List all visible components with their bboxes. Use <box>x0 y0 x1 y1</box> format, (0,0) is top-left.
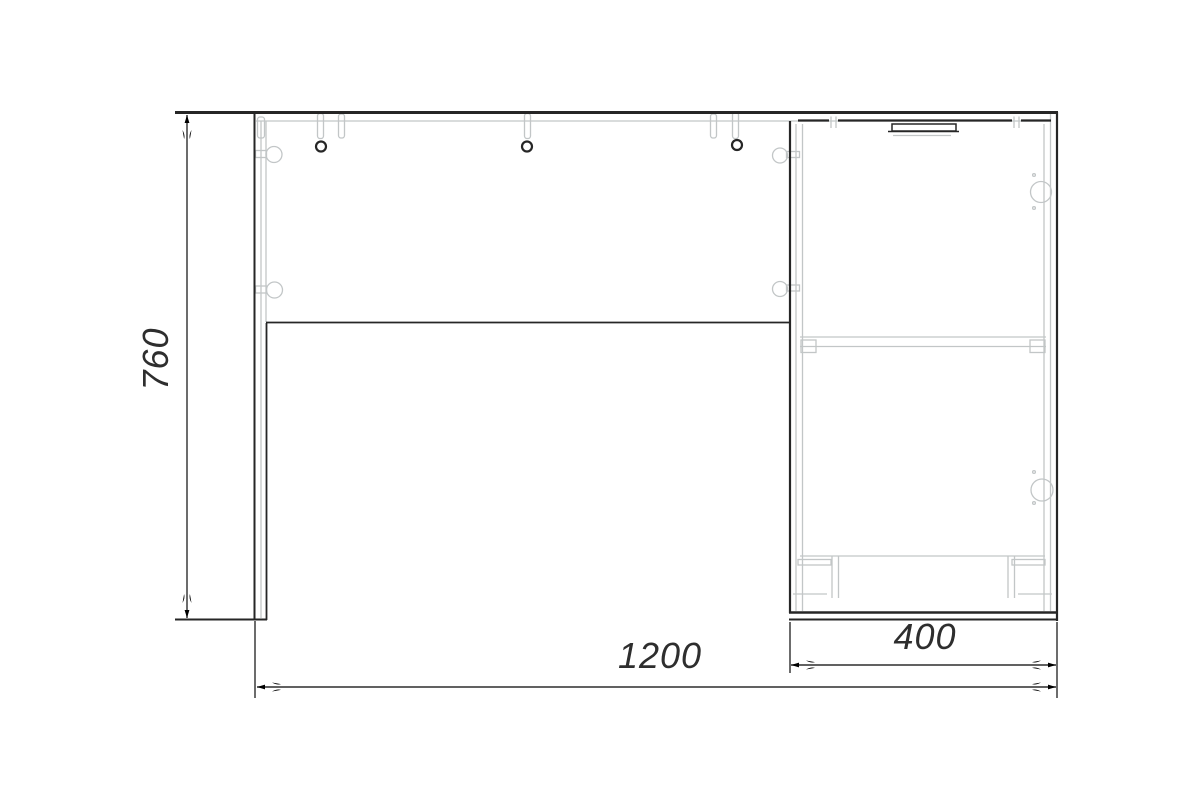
width-dimension-label: 1200 <box>595 636 725 676</box>
width-dimension-line <box>257 683 1056 692</box>
technical-drawing-canvas: 760 1200 400 <box>0 0 1200 800</box>
desk-elevation-drawing <box>0 0 1200 800</box>
height-dimension-label: 760 <box>136 294 176 424</box>
hidden-edges <box>256 114 1051 618</box>
dowel-pins <box>258 113 739 139</box>
bottom-shelf-and-legs <box>793 556 1052 598</box>
cam-lock-fittings <box>256 147 800 299</box>
drawer-handle <box>888 124 959 132</box>
screw-heads <box>316 140 742 152</box>
cabinet-body <box>789 112 1058 621</box>
dimension-lines <box>183 115 1058 698</box>
shelf-divider <box>800 337 1046 353</box>
desk-outline <box>175 112 1058 620</box>
depth-dimension-label: 400 <box>860 617 990 657</box>
depth-dimension-line <box>791 661 1056 670</box>
height-dimension-line <box>183 115 192 618</box>
cabinet-side-holes <box>1031 174 1054 505</box>
